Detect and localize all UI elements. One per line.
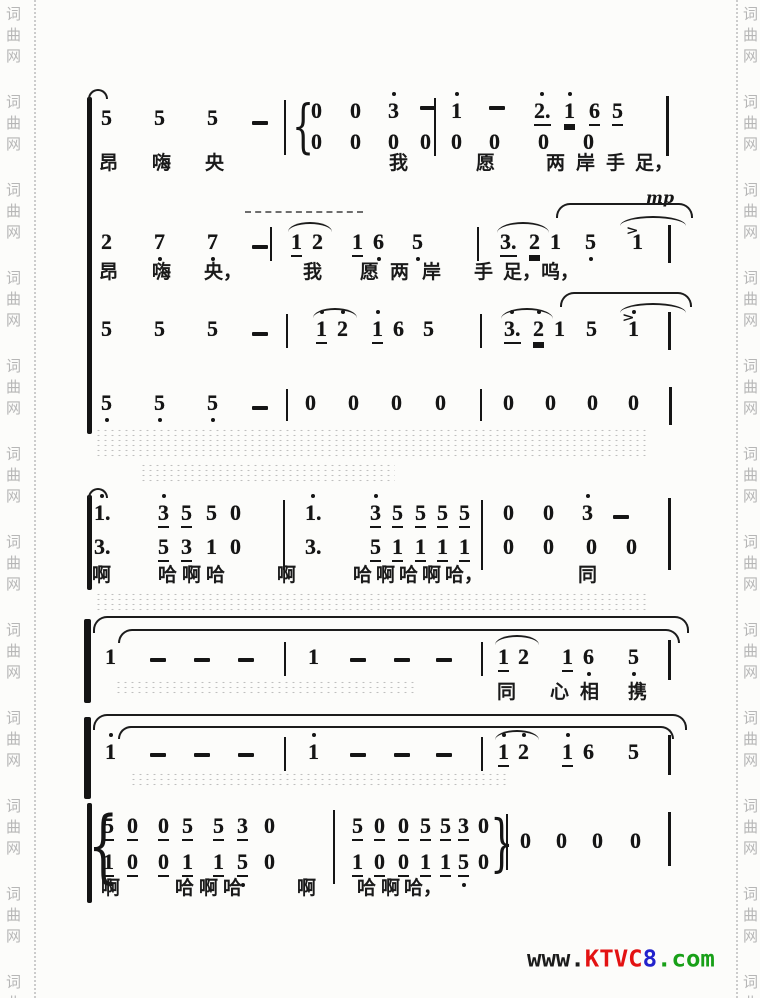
octave-dot-above [392,92,396,96]
watermark-char: 词 [6,796,21,817]
note: 5 [237,851,248,877]
octave-dot-below [158,418,162,422]
watermark-char: 词 [743,92,758,113]
note: 0 [630,830,641,852]
watermark-char: 网 [6,574,21,595]
note: 5 [158,536,169,562]
watermark-char: 曲 [743,25,758,46]
dashed-line [245,211,363,213]
octave-dot-above [540,92,544,96]
watermark-char: 词 [6,268,21,289]
watermark-char: 网 [743,838,758,859]
watermark-char: 词 [6,708,21,729]
note: 1 [392,536,403,562]
barline [481,642,483,676]
lyric: 心 [550,682,569,703]
phrase-arc [88,488,108,498]
watermark-group: 词曲网 [743,444,758,507]
note: 5 [101,107,112,129]
octave-dot-above [566,733,570,737]
barline [668,735,671,775]
note: 1 [451,100,462,122]
note-dash [436,658,452,662]
note: 0 [127,815,138,841]
watermark-char: 曲 [6,377,21,398]
lyric: 啊 [297,878,316,899]
note: 5 [459,502,470,528]
note: 1 [562,741,573,767]
note: 0 [587,392,598,414]
voice-brace: } [490,812,514,874]
note: 0 [592,830,603,852]
note: 1. [305,502,322,524]
note: 2 [533,318,544,344]
note: 0 [503,502,514,524]
scan-noise [95,592,647,614]
note: 3. [94,536,111,558]
note: 0 [305,392,316,414]
note: 1 [316,318,327,344]
barline [283,500,285,570]
note: 0 [478,851,489,873]
note: 5 [392,502,403,528]
note: 5 [440,815,451,841]
lyric: 足， [503,262,541,283]
note: 5 [154,392,165,414]
note: 5 [101,318,112,340]
note: 3 [458,815,469,841]
lyric: 同 [578,565,597,586]
note: 0 [158,815,169,841]
note: 1 [291,231,302,257]
note-dash [252,121,268,125]
note: 3 [158,502,169,528]
note: 2 [312,231,323,253]
lyric: 昂 [99,262,118,283]
note: 1 [550,231,561,253]
barline [284,100,286,155]
note: 1 [308,646,319,668]
lyric: 愿 [360,262,379,283]
note-dash [394,658,410,662]
lyric: 哈 [353,565,372,586]
lyric: 手 [474,262,493,283]
note: 5 [458,851,469,877]
note-dash [350,753,366,757]
watermark-char: 曲 [743,201,758,222]
note: 2. [534,100,551,126]
note: 3 [582,502,593,524]
note: 5 [420,815,431,841]
barline [481,500,483,570]
barline [286,314,288,348]
octave-dot-below [105,418,109,422]
note: 0 [543,536,554,558]
note: 1 [420,851,431,877]
lyric: 哈 [206,565,225,586]
note: 6 [393,318,404,340]
octave-dot-below [589,257,593,261]
watermark-group: 词曲网 [6,356,21,419]
watermark-char: 网 [6,46,21,67]
lyric: 携 [628,682,647,703]
watermark-char: 词 [6,884,21,905]
barline [506,814,508,870]
note: 5 [213,815,224,841]
lyric: 哈 [399,565,418,586]
note: 6 [373,231,384,253]
note: 0 [489,131,500,153]
note: 5 [585,231,596,253]
watermark-char: 网 [743,222,758,243]
note: 0 [478,815,489,837]
logo-segment: 8 [643,946,657,973]
watermark-char: 网 [6,750,21,771]
watermark-char: 网 [6,926,21,947]
note: 1 [498,741,509,767]
watermark-char: 词 [6,180,21,201]
site-logo: www.KTVC8.com [527,946,715,973]
note: 0 [374,815,385,841]
lyric: 哈， [404,878,442,899]
note: 0 [420,131,431,153]
slur-arc [501,308,553,320]
octave-dot-below [632,672,636,676]
note: 5 [612,100,623,126]
octave-dot-below [416,257,420,261]
watermark-char: 曲 [743,729,758,750]
octave-dot-above [455,92,459,96]
watermark-char: 曲 [743,377,758,398]
barline [481,737,483,771]
barline [270,227,272,261]
note: 5 [182,815,193,841]
note: 0 [311,131,322,153]
lyric: 哈 [357,878,376,899]
note: 0 [503,536,514,558]
watermark-char: 词 [743,4,758,25]
watermark-char: 曲 [6,201,21,222]
note: 2 [529,231,540,257]
note: 0 [398,815,409,841]
watermark-group: 词曲网 [743,796,758,859]
watermark-char: 网 [6,486,21,507]
watermark-char: 曲 [6,817,21,838]
right-watermark-column: 词曲网词曲网词曲网词曲网词曲网词曲网词曲网词曲网词曲网词曲网词曲网词曲网词曲网词… [743,4,758,998]
watermark-char: 网 [6,662,21,683]
watermark-group: 词曲网 [743,268,758,331]
watermark-group: 词曲网 [743,884,758,947]
watermark-char: 曲 [6,25,21,46]
note: 0 [230,502,241,524]
watermark-char: 词 [743,356,758,377]
note: 5 [154,107,165,129]
note: 3 [181,536,192,562]
note: 5 [207,107,218,129]
note: 0 [348,392,359,414]
note: 0 [626,536,637,558]
note-dash [252,245,268,249]
note-dash [150,753,166,757]
note-dash [238,753,254,757]
phrase-arc [118,726,674,739]
watermark-group: 词曲网 [6,708,21,771]
note: 7 [207,231,218,253]
octave-dot-above [162,494,166,498]
note: 0 [311,100,322,122]
lyric: 啊 [422,565,441,586]
barline [668,312,671,350]
slur-arc [497,222,549,234]
watermark-char: 曲 [743,993,758,998]
note: 1. [94,502,111,524]
lyric: 央 [205,153,224,174]
note: 0 [520,830,531,852]
lyric: 啊 [277,565,296,586]
watermark-char: 词 [743,180,758,201]
watermark-group: 词曲网 [6,972,21,998]
lyric: 哈 [175,878,194,899]
watermark-char: 网 [6,838,21,859]
watermark-char: 网 [6,398,21,419]
note: 1 [437,536,448,562]
watermark-group: 词曲网 [743,620,758,683]
note: 1 [564,100,575,126]
note-dash [150,658,166,662]
lyric: 哈， [445,565,483,586]
watermark-char: 网 [6,310,21,331]
note: 0 [583,131,594,153]
watermark-group: 词曲网 [743,4,758,67]
watermark-group: 词曲网 [6,796,21,859]
watermark-char: 网 [743,662,758,683]
watermark-group: 词曲网 [6,884,21,947]
note: 1 [182,851,193,877]
note: 1 [213,851,224,877]
note: 5 [415,502,426,528]
watermark-char: 曲 [743,553,758,574]
scan-noise [95,428,647,458]
note: 5 [101,392,112,414]
left-watermark-column: 词曲网词曲网词曲网词曲网词曲网词曲网词曲网词曲网词曲网词曲网词曲网词曲网词曲网词… [6,4,21,998]
note: 0 [127,851,138,877]
watermark-char: 曲 [6,729,21,750]
barline [668,812,671,866]
watermark-group: 词曲网 [6,620,21,683]
watermark-char: 曲 [743,641,758,662]
note: 1 [372,318,383,344]
barline [668,640,671,680]
barline [666,96,669,156]
note-dash [252,406,268,410]
note: 1 [632,231,643,253]
lyric: 啊 [376,565,395,586]
watermark-char: 词 [743,444,758,465]
note: 1 [105,646,116,668]
watermark-group: 词曲网 [743,180,758,243]
note: 5 [207,318,218,340]
note: 3 [370,502,381,528]
note: 0 [435,392,446,414]
watermark-char: 曲 [6,993,21,998]
watermark-char: 网 [6,222,21,243]
note: 0 [230,536,241,558]
note: 1 [105,741,116,763]
note: 1 [308,741,319,763]
note: 0 [388,131,399,153]
watermark-char: 词 [743,884,758,905]
lyric: 我 [389,153,408,174]
note: 1 [459,536,470,562]
watermark-char: 曲 [743,905,758,926]
lyric: 我 [303,262,322,283]
right-dotted-rule [736,0,738,998]
watermark-char: 曲 [743,817,758,838]
note-dash [252,332,268,336]
note: 0 [586,536,597,558]
watermark-char: 网 [743,398,758,419]
lyric: 岸 [576,153,595,174]
note: 5 [586,318,597,340]
watermark-group: 词曲网 [743,356,758,419]
watermark-group: 词曲网 [743,532,758,595]
lyric: 昂 [99,153,118,174]
watermark-char: 曲 [6,905,21,926]
note: 2 [518,741,529,763]
barline [284,642,286,676]
note: 2 [101,231,112,253]
note: 1 [352,851,363,877]
note: 6 [583,646,594,668]
note: 0 [158,851,169,877]
note: 0 [556,830,567,852]
watermark-char: 曲 [743,289,758,310]
note: 1 [628,318,639,340]
watermark-char: 词 [6,620,21,641]
note-dash [194,753,210,757]
lyric: 手 [606,153,625,174]
note: 5 [423,318,434,340]
logo-segment: KTVC [585,946,643,973]
scan-noise [140,463,395,483]
barline [477,227,479,261]
octave-dot-above [312,733,316,737]
system-bracket [87,97,92,434]
octave-dot-above [632,310,636,314]
lyric: 嗨 [152,153,171,174]
octave-dot-above [568,92,572,96]
watermark-char: 词 [6,444,21,465]
note: 5 [628,741,639,763]
note: 0 [543,502,554,524]
scan-noise [130,772,510,786]
barline [284,737,286,771]
note: 6 [583,741,594,763]
note: 5 [412,231,423,253]
note-dash [350,658,366,662]
lyric: 啊 [381,878,400,899]
note: 0 [350,100,361,122]
note: 0 [538,131,549,153]
watermark-char: 词 [6,4,21,25]
octave-dot-above [586,494,590,498]
phrase-arc [556,203,693,218]
barline [480,314,482,348]
watermark-group: 词曲网 [6,532,21,595]
watermark-char: 曲 [743,465,758,486]
watermark-char: 网 [6,134,21,155]
note-dash [436,753,452,757]
logo-segment: www. [527,946,585,973]
note: 6 [589,100,600,126]
barline [286,389,288,421]
note: 7 [154,231,165,253]
note: 3. [305,536,322,558]
note: 5 [437,502,448,528]
note: 1 [103,851,114,877]
lyric: 哈 [158,565,177,586]
watermark-char: 网 [743,486,758,507]
note: 0 [264,815,275,837]
watermark-char: 曲 [6,641,21,662]
watermark-group: 词曲网 [743,92,758,155]
slur-arc [313,308,357,319]
note: 5 [352,815,363,841]
watermark-char: 网 [743,926,758,947]
watermark-char: 词 [743,620,758,641]
watermark-char: 词 [743,796,758,817]
watermark-char: 词 [6,532,21,553]
barline [668,225,671,263]
note: 1 [498,646,509,672]
system-bracket [84,717,91,799]
system-bracket [84,619,91,703]
note: 1 [415,536,426,562]
watermark-char: 网 [743,310,758,331]
barline [668,498,671,570]
note: 0 [451,131,462,153]
note: 1 [206,536,217,558]
note: 1 [352,231,363,257]
barline [480,389,482,421]
watermark-char: 网 [743,134,758,155]
slur-arc [288,222,332,233]
lyric: 愿 [476,153,495,174]
note-dash [394,753,410,757]
watermark-char: 词 [6,972,21,993]
note: 5 [103,815,114,841]
barline [434,98,436,156]
octave-dot-below [587,672,591,676]
note: 5 [207,392,218,414]
watermark-char: 曲 [6,113,21,134]
note: 5 [206,502,217,524]
note: 1 [554,318,565,340]
phrase-arc [118,629,680,643]
note: 3 [237,815,248,841]
note: 5 [370,536,381,562]
octave-dot-below [211,418,215,422]
lyric: 呜， [541,262,579,283]
note-dash [238,658,254,662]
watermark-char: 词 [743,268,758,289]
logo-segment: .com [657,946,715,973]
lyric: 啊 [182,565,201,586]
note: 0 [374,851,385,877]
lyric: 嗨 [152,262,171,283]
watermark-char: 词 [6,356,21,377]
note: 0 [391,392,402,414]
